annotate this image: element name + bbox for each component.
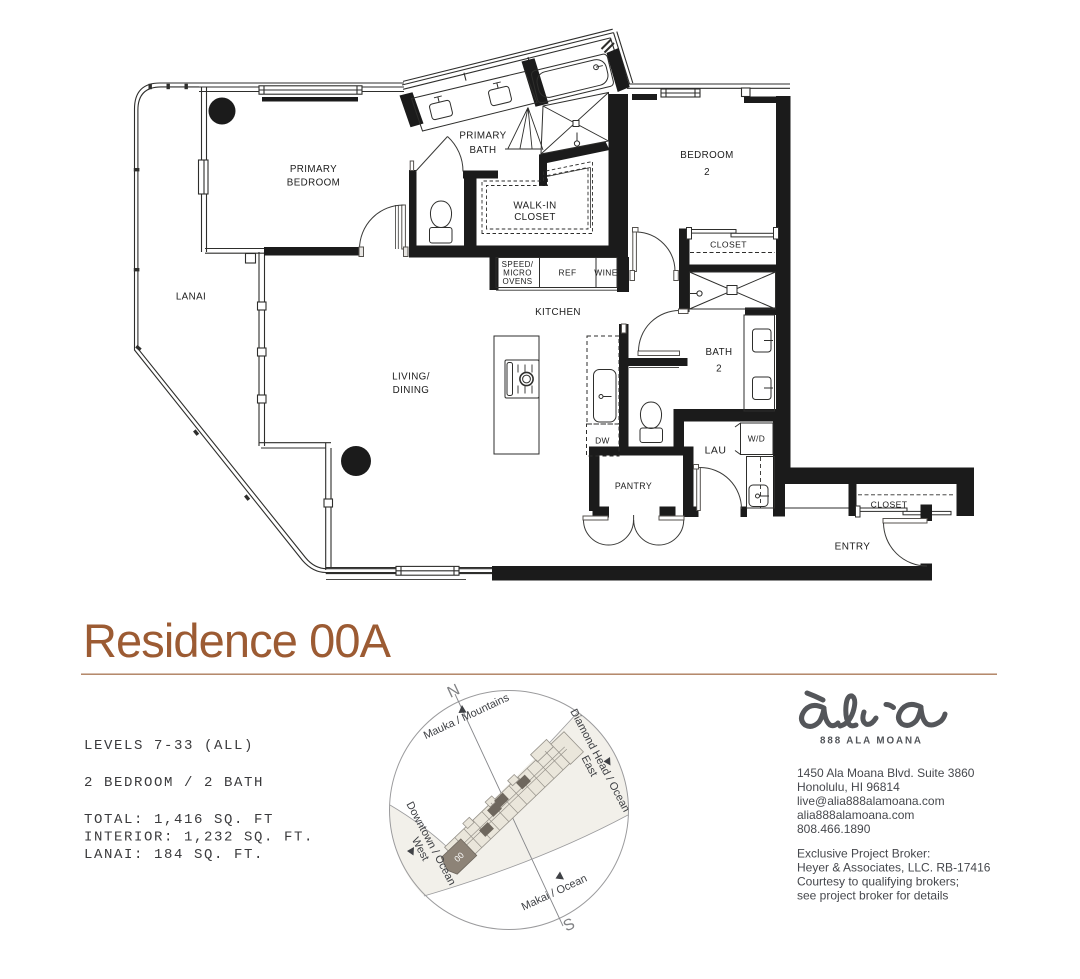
svg-text:PANTRY: PANTRY bbox=[615, 481, 652, 491]
svg-text:LIVING/: LIVING/ bbox=[392, 372, 430, 383]
svg-text:CLOSET: CLOSET bbox=[514, 212, 556, 223]
svg-text:Heyer & Associates, LLC. RB-17: Heyer & Associates, LLC. RB-17416 bbox=[797, 861, 991, 875]
svg-text:2 BEDROOM / 2 BATH: 2 BEDROOM / 2 BATH bbox=[84, 775, 264, 791]
svg-text:Exclusive Project Broker:: Exclusive Project Broker: bbox=[797, 847, 930, 861]
svg-text:live@alia888alamoana.com: live@alia888alamoana.com bbox=[797, 794, 945, 808]
svg-text:DINING: DINING bbox=[393, 385, 430, 396]
svg-text:ENTRY: ENTRY bbox=[835, 542, 871, 553]
svg-text:BEDROOM: BEDROOM bbox=[287, 178, 340, 189]
svg-text:OVENS: OVENS bbox=[502, 277, 532, 286]
svg-text:LAU: LAU bbox=[705, 445, 727, 457]
svg-text:Courtesy to qualifying brokers: Courtesy to qualifying brokers; bbox=[797, 875, 959, 889]
svg-text:888 ALA MOANA: 888 ALA MOANA bbox=[820, 736, 923, 747]
svg-text:808.466.1890: 808.466.1890 bbox=[797, 822, 871, 836]
svg-text:WALK-IN: WALK-IN bbox=[513, 201, 556, 212]
svg-text:LANAI: LANAI bbox=[176, 292, 206, 303]
svg-text:WINE: WINE bbox=[594, 268, 617, 278]
svg-text:1450 Ala Moana Blvd. Suite 386: 1450 Ala Moana Blvd. Suite 3860 bbox=[797, 766, 975, 780]
svg-text:BATH: BATH bbox=[469, 145, 496, 156]
svg-text:W/D: W/D bbox=[748, 434, 765, 444]
svg-text:2: 2 bbox=[716, 364, 722, 375]
svg-text:INTERIOR: 1,232 SQ. FT.: INTERIOR: 1,232 SQ. FT. bbox=[84, 830, 314, 846]
svg-text:Residence 00A: Residence 00A bbox=[83, 614, 392, 667]
svg-text:BATH: BATH bbox=[705, 347, 732, 358]
svg-text:CLOSET: CLOSET bbox=[871, 500, 908, 510]
svg-text:PRIMARY: PRIMARY bbox=[290, 164, 337, 175]
svg-text:REF: REF bbox=[559, 268, 577, 278]
svg-text:alia888alamoana.com: alia888alamoana.com bbox=[797, 808, 914, 822]
svg-text:BEDROOM: BEDROOM bbox=[680, 150, 733, 161]
svg-text:TOTAL: 1,416 SQ. FT: TOTAL: 1,416 SQ. FT bbox=[84, 812, 274, 828]
svg-text:LANAI: 184 SQ. FT.: LANAI: 184 SQ. FT. bbox=[84, 847, 264, 863]
svg-text:DW: DW bbox=[595, 436, 610, 446]
svg-text:Honolulu, HI 96814: Honolulu, HI 96814 bbox=[797, 780, 900, 794]
svg-text:2: 2 bbox=[704, 167, 710, 178]
svg-text:CLOSET: CLOSET bbox=[710, 240, 747, 250]
svg-text:see project broker for details: see project broker for details bbox=[797, 889, 948, 903]
svg-text:LEVELS 7-33 (ALL): LEVELS 7-33 (ALL) bbox=[84, 738, 254, 754]
svg-text:PRIMARY: PRIMARY bbox=[459, 131, 506, 142]
svg-text:KITCHEN: KITCHEN bbox=[535, 307, 581, 318]
